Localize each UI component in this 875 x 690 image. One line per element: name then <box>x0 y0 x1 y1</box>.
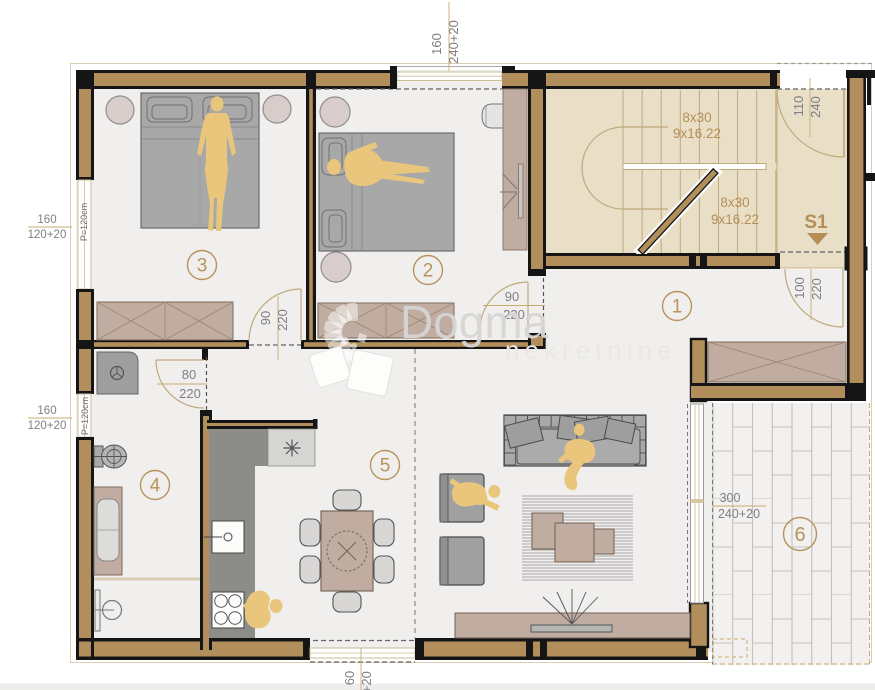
svg-text:60: 60 <box>342 671 357 685</box>
svg-text:300: 300 <box>720 491 741 505</box>
svg-text:240+20: 240+20 <box>359 671 374 690</box>
svg-text:160: 160 <box>37 405 56 417</box>
svg-text:P=120cm: P=120cm <box>79 203 89 241</box>
svg-text:80: 80 <box>182 367 196 382</box>
svg-text:9x16.22: 9x16.22 <box>673 126 721 141</box>
svg-text:240+20: 240+20 <box>446 20 461 64</box>
svg-text:160: 160 <box>429 33 444 55</box>
svg-text:1: 1 <box>672 297 683 318</box>
svg-text:P=120cm: P=120cm <box>80 397 90 435</box>
svg-text:120+20: 120+20 <box>28 420 67 432</box>
svg-text:220: 220 <box>809 278 824 300</box>
svg-text:110: 110 <box>791 96 806 117</box>
svg-text:6: 6 <box>794 524 805 546</box>
svg-text:100: 100 <box>792 277 807 299</box>
svg-text:5: 5 <box>380 456 391 477</box>
svg-text:160: 160 <box>37 214 56 226</box>
svg-text:220: 220 <box>179 386 201 401</box>
svg-text:90: 90 <box>258 311 273 325</box>
svg-text:4: 4 <box>150 476 161 497</box>
svg-text:8x30: 8x30 <box>682 110 711 125</box>
svg-text:240+20: 240+20 <box>718 507 760 521</box>
svg-text:240: 240 <box>808 96 823 118</box>
svg-text:2: 2 <box>423 261 434 282</box>
svg-text:8x30: 8x30 <box>720 195 749 210</box>
svg-text:3: 3 <box>197 256 208 277</box>
svg-text:9x16.22: 9x16.22 <box>711 212 759 227</box>
svg-text:120+20: 120+20 <box>28 229 67 241</box>
svg-text:S1: S1 <box>804 212 828 233</box>
svg-text:nekretnine: nekretnine <box>505 335 676 365</box>
svg-text:220: 220 <box>275 309 290 331</box>
